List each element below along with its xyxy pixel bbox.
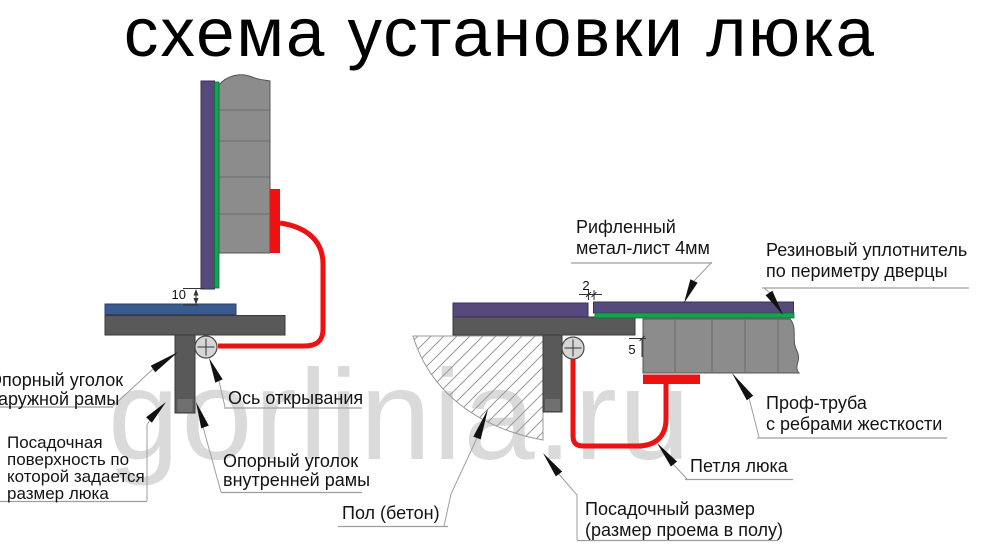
- right-prof-tube-shape: [643, 319, 799, 373]
- label-floor-concrete: Пол (бетон): [342, 504, 440, 523]
- label-seat-size-line1: Посадочный размер: [585, 499, 783, 520]
- label-outer-angle-line1: Опорный уголок: [0, 371, 123, 390]
- label-hatch-hinge-line1: Петля люка: [690, 457, 788, 476]
- concrete-hatch-area: [413, 336, 543, 440]
- label-seat-surface-line3: которой задается: [7, 468, 145, 485]
- right-frame-stem-foot: [545, 399, 560, 411]
- dimension-2-value: 2: [578, 279, 594, 292]
- label-seat-size-line2: (размер проема в полу): [585, 520, 783, 541]
- label-seat-surface: Посадочная поверхность по которой задает…: [7, 434, 145, 502]
- right-frame-sheet: [453, 303, 588, 317]
- right-door-sheet: [594, 302, 794, 313]
- label-prof-tube: Проф-труба с ребрами жесткости: [766, 393, 942, 435]
- label-seat-surface-line1: Посадочная: [7, 434, 145, 451]
- dimension-10-arrow-up: [194, 289, 199, 296]
- label-rubber-seal-line2: по периметру дверцы: [766, 261, 967, 282]
- left-frame-bar: [105, 316, 285, 336]
- label-metal-sheet-line1: Рифленный: [576, 217, 710, 238]
- label-hatch-hinge: Петля люка: [690, 457, 788, 476]
- left-door-leaf: [201, 81, 215, 289]
- right-frame-bar: [453, 317, 635, 335]
- label-inner-angle: Опорный уголок внутренней рамы: [223, 452, 370, 490]
- left-hinge-plate: [270, 189, 280, 253]
- left-support-angle-blue: [105, 304, 236, 315]
- label-opening-axis: Ось открывания: [228, 389, 363, 408]
- label-opening-axis-line1: Ось открывания: [228, 389, 363, 408]
- label-inner-angle-line2: внутренней рамы: [223, 471, 370, 490]
- left-section-view: [105, 75, 323, 413]
- right-section-view: [413, 290, 799, 446]
- label-outer-angle-line2: наружной рамы: [0, 390, 123, 409]
- label-outer-angle: Опорный уголок наружной рамы: [0, 371, 123, 409]
- label-prof-tube-line2: с ребрами жесткости: [766, 414, 942, 435]
- right-rubber-seal: [595, 313, 794, 318]
- diagram-canvas: gorlinia.ru: [0, 0, 1000, 560]
- label-seat-surface-line2: поверхность по: [7, 451, 145, 468]
- label-seat-surface-line4: размер люка: [7, 485, 145, 502]
- label-prof-tube-line1: Проф-труба: [766, 393, 942, 414]
- label-rubber-seal: Резиновый уплотнитель по периметру дверц…: [766, 240, 967, 282]
- dimension-10-value: 10: [162, 288, 186, 301]
- label-metal-sheet-line2: метал-лист 4мм: [576, 238, 710, 259]
- dimension-10-lines: [183, 289, 204, 306]
- right-hinge-plate: [643, 375, 700, 385]
- left-frame-stem-foot: [178, 399, 193, 412]
- label-floor-concrete-line1: Пол (бетон): [342, 504, 440, 523]
- label-seat-size: Посадочный размер (размер проема в полу): [585, 499, 783, 541]
- dimension-5-value: 5: [625, 343, 639, 356]
- label-inner-angle-line1: Опорный уголок: [223, 452, 370, 471]
- label-metal-sheet: Рифленный метал-лист 4мм: [576, 217, 710, 259]
- left-rubber-seal: [215, 82, 220, 288]
- left-prof-tube-shape: [219, 75, 270, 253]
- label-rubber-seal-line1: Резиновый уплотнитель: [766, 240, 967, 261]
